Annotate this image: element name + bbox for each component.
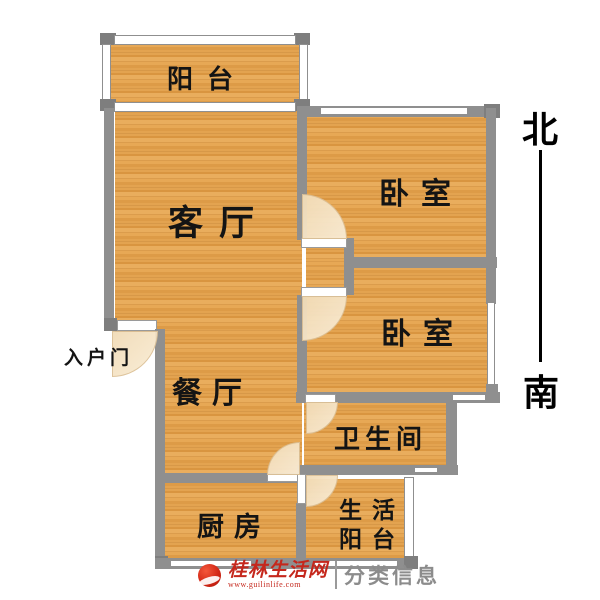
utility-balcony-label-line2: 阳台: [339, 520, 405, 554]
watermark-category-text: 分类信息: [344, 560, 440, 590]
living-room-label: 客厅: [168, 195, 270, 246]
bedroom1-window-top: [320, 107, 468, 115]
bathroom-window: [414, 467, 438, 473]
balcony-label: 阳台: [167, 59, 247, 96]
wall-bedroom-divider: [344, 257, 497, 268]
site-logo-icon: [198, 564, 221, 587]
bedroom2-window-right: [487, 302, 495, 386]
kitchen-label: 厨房: [197, 505, 271, 544]
bedroom2-label: 卧室: [381, 309, 465, 353]
utility-window-right: [404, 477, 414, 561]
wall-living-left: [104, 108, 114, 324]
floorplan-canvas: 阳台 客厅 卧室 卧室 入户门 餐厅 卫生间 厨房 生活 阳台 北 南 桂林生活…: [0, 0, 600, 600]
site-watermark: 桂林生活网 www.guilinlife.com 分类信息: [198, 560, 440, 590]
bedroom2-window-bottom: [452, 394, 486, 401]
kitchen-door: [267, 474, 300, 482]
compass-line: [539, 150, 542, 362]
dining-room-label: 餐厅: [172, 368, 252, 412]
wall-right-outer: [486, 108, 496, 304]
balcony-sliding-door: [114, 102, 296, 112]
watermark-divider: [335, 561, 337, 589]
entrance-label: 入户门: [64, 343, 133, 370]
site-url: www.guilinlife.com: [228, 581, 328, 589]
balcony-window-right: [299, 44, 308, 102]
wall-bathroom-right: [446, 400, 457, 470]
compass-north-label: 北: [522, 101, 558, 153]
bedroom1-door: [301, 238, 347, 248]
wall-corner: [104, 318, 117, 331]
utility-balcony-door: [297, 474, 306, 504]
bedroom1-label: 卧室: [379, 169, 463, 213]
site-name: 桂林生活网: [228, 561, 328, 580]
balcony-window-top: [114, 35, 296, 45]
compass-south-label: 南: [523, 364, 559, 416]
bathroom-label: 卫生间: [334, 419, 427, 456]
entrance-door: [117, 320, 157, 331]
wall-dining-left: [155, 329, 165, 569]
site-name-block: 桂林生活网 www.guilinlife.com: [228, 561, 328, 589]
balcony-window-left: [102, 44, 111, 102]
